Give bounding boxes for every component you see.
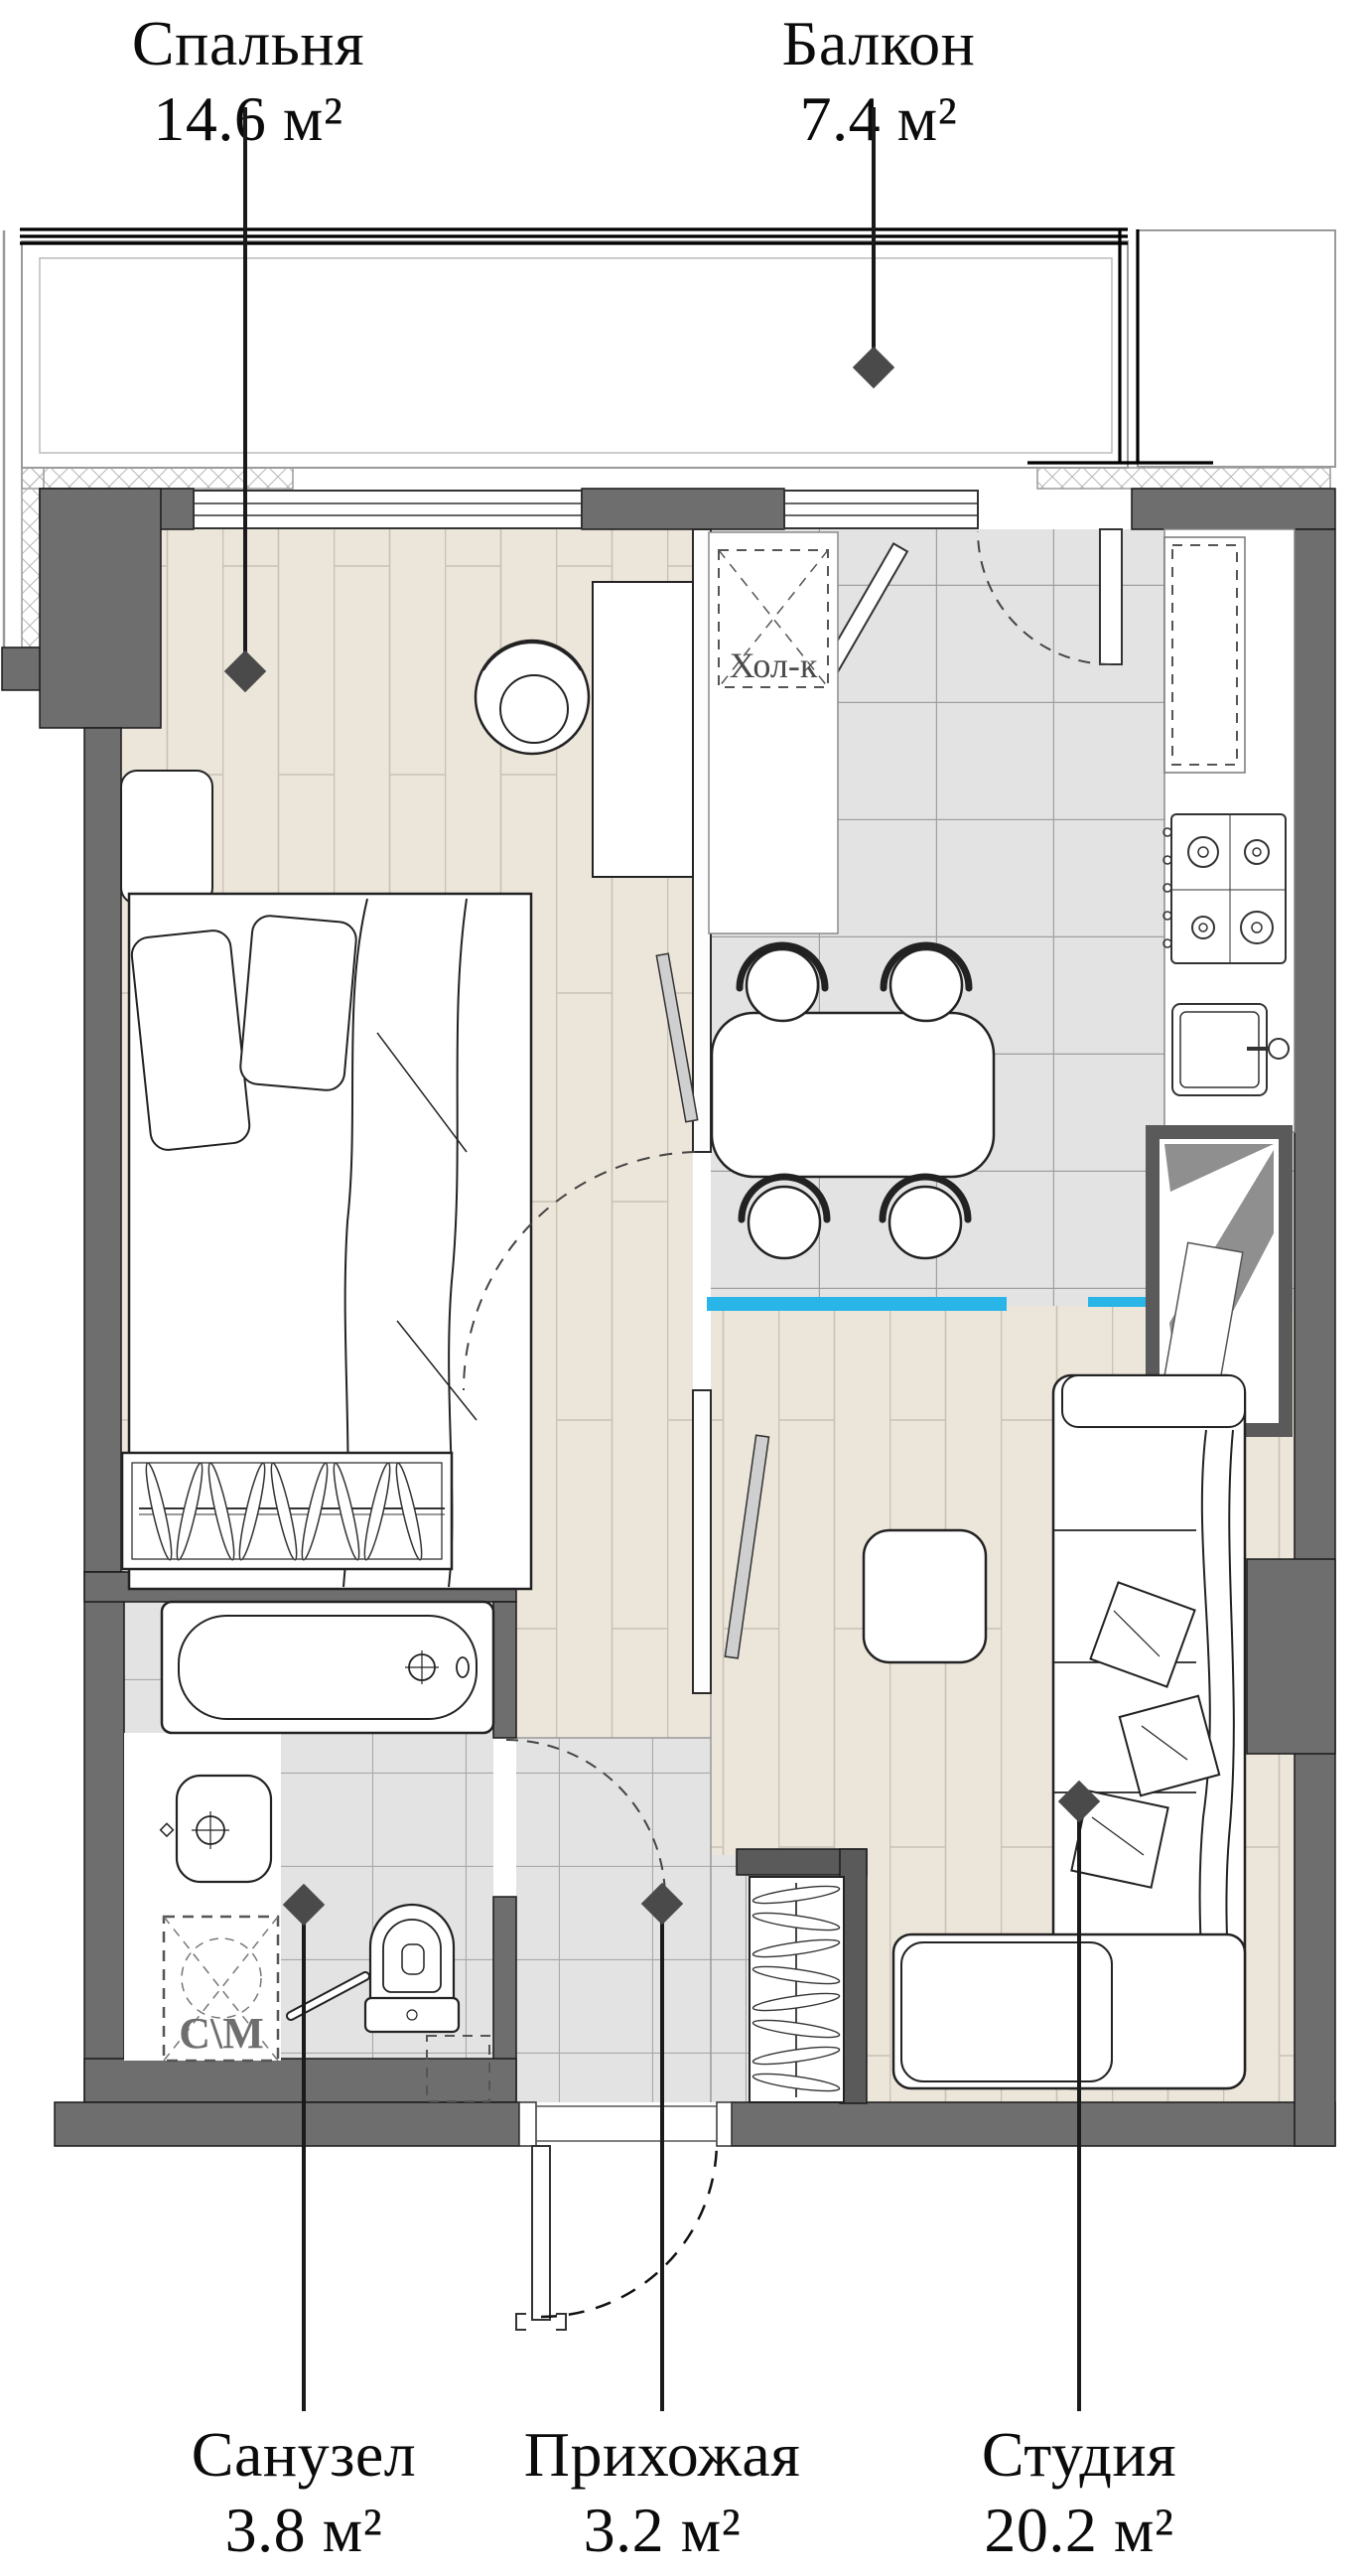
wall-right bbox=[1295, 529, 1335, 2146]
kitchen-counter-left bbox=[709, 532, 838, 933]
wall-left bbox=[84, 728, 121, 1572]
neighbor-balcony bbox=[1138, 230, 1335, 467]
nightstand bbox=[121, 771, 212, 904]
hall-closet bbox=[750, 1877, 844, 2102]
bedroom-wardrobe bbox=[122, 1453, 452, 1569]
wall-corner-left bbox=[40, 489, 161, 728]
gas-stove bbox=[1163, 814, 1286, 963]
washing-machine-label: С\М bbox=[179, 2009, 264, 2058]
toilet bbox=[365, 1905, 459, 2032]
wall-bottom-left bbox=[55, 2102, 519, 2146]
dining-table bbox=[712, 1013, 994, 1177]
entrance-door-leaf bbox=[532, 2146, 550, 2320]
coffee-table bbox=[864, 1530, 986, 1662]
wall-left-bath bbox=[84, 1572, 124, 2102]
wall-right-pillar bbox=[1247, 1559, 1335, 1754]
floor-plan-page: Спальня 14.6 м² Балкон 7.4 м² Санузел 3.… bbox=[0, 0, 1366, 2576]
pillow-1 bbox=[130, 929, 251, 1151]
armchair bbox=[476, 641, 589, 754]
parapet-hatch-left bbox=[22, 468, 293, 489]
tv-console bbox=[593, 582, 693, 877]
wall-bath-right-a bbox=[493, 1602, 516, 1738]
wall-top-3 bbox=[1132, 489, 1335, 529]
kitchen-window bbox=[784, 491, 978, 528]
fridge-label: Хол-к bbox=[730, 645, 818, 685]
wall-bottom-right bbox=[732, 2102, 1335, 2146]
parapet-hatch-right bbox=[1037, 468, 1330, 489]
washbasin bbox=[161, 1776, 271, 1882]
bathtub bbox=[162, 1602, 493, 1733]
wall-bath-bottom bbox=[84, 2059, 516, 2102]
entrance-door-swing bbox=[541, 2141, 717, 2317]
balcony-door-leaf bbox=[1100, 529, 1122, 664]
wall-top-2 bbox=[582, 489, 784, 529]
pillow-2 bbox=[239, 915, 357, 1092]
entrance-door bbox=[516, 2102, 732, 2330]
bedroom-window bbox=[194, 491, 582, 528]
tall-cabinet bbox=[1164, 537, 1245, 773]
balcony-slab bbox=[22, 241, 1128, 468]
floor-plan-drawing: Хол-к bbox=[0, 0, 1366, 2576]
